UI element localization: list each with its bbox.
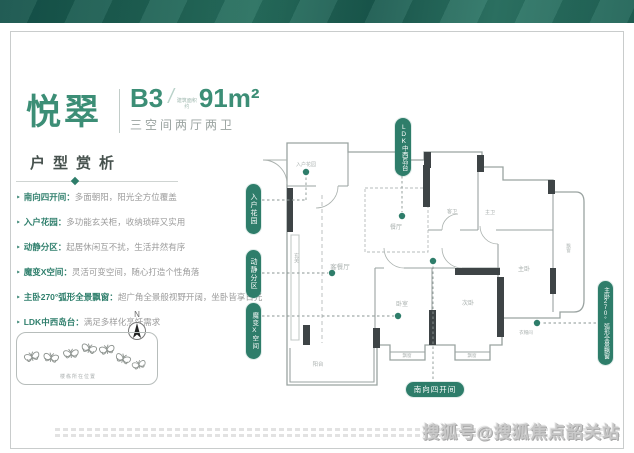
title-divider bbox=[119, 89, 120, 133]
bullet-icon: ‣ bbox=[16, 243, 21, 252]
compass-north-label: N bbox=[126, 311, 148, 319]
feature-label: 入户花园： bbox=[24, 217, 67, 227]
room-label: 入户花园 bbox=[296, 161, 316, 168]
bullet-icon: ‣ bbox=[16, 218, 21, 227]
location-box: 楼栋所在位置 bbox=[16, 332, 158, 385]
unit-code: B3 bbox=[130, 84, 163, 112]
bullet-icon: ‣ bbox=[16, 268, 21, 277]
room-label: 阳台 bbox=[312, 360, 324, 368]
unit-subtitle: 三空间两厅两卫 bbox=[130, 116, 235, 133]
feature-item: ‣动静分区：起居休闲互不扰，生活井然有序 bbox=[16, 241, 266, 253]
floorplan-drawing: 入户花园 餐厅 客卫 主卫 客餐厅 玄关 卧室 次卧 主卧 衣帽间 阳台 飘窗 … bbox=[252, 128, 608, 408]
room-label: 客餐厅 bbox=[330, 262, 350, 271]
project-name: 悦翠 bbox=[26, 84, 102, 135]
room-label: 卧室 bbox=[396, 300, 408, 308]
area-prefix: 建筑面积 约 bbox=[177, 84, 197, 110]
bullet-icon: ‣ bbox=[16, 318, 21, 327]
room-label: 客卫 bbox=[447, 208, 457, 215]
feature-label: LDK中西岛台： bbox=[24, 317, 84, 327]
unit-title-row: B3 / 建筑面积 约 91m² bbox=[130, 84, 260, 112]
callout-south-facing: 南向四开间 bbox=[406, 382, 464, 397]
room-label: 飘窗 bbox=[566, 243, 572, 254]
area-prefix-bottom: 约 bbox=[177, 104, 197, 110]
butterflies-illustration bbox=[17, 333, 155, 373]
feature-item: ‣入户花园：多功能玄关柜，收纳琐碎又实用 bbox=[16, 216, 266, 228]
feature-desc: 多功能玄关柜，收纳琐碎又实用 bbox=[66, 217, 185, 227]
section-title: 户型赏析 bbox=[30, 152, 122, 173]
room-label: 主卫 bbox=[485, 209, 495, 216]
feature-desc: 超广角全景般视野开阔，坐卧皆享日光 bbox=[118, 292, 263, 302]
door-arcs bbox=[316, 186, 498, 268]
bullet-icon: ‣ bbox=[16, 293, 21, 302]
feature-item: ‣魔变X空间：灵活可变空间，随心打造个性角落 bbox=[16, 266, 266, 278]
feature-item: ‣南向四开间：多面朝阳，阳光全方位覆盖 bbox=[16, 191, 266, 203]
callout-dots bbox=[303, 169, 540, 326]
room-label: 主卧 bbox=[518, 265, 530, 273]
feature-desc: 起居休闲互不扰，生活井然有序 bbox=[66, 242, 185, 252]
feature-desc: 满足多样化烹饪需求 bbox=[84, 317, 161, 327]
feature-label: 主卧270°弧形全景飘窗： bbox=[24, 292, 118, 302]
room-label: 玄关 bbox=[293, 252, 299, 264]
area-value: 91m² bbox=[199, 84, 260, 112]
feature-desc: 灵活可变空间，随心打造个性角落 bbox=[72, 267, 200, 277]
decorative-top-band bbox=[0, 0, 634, 23]
section-underline bbox=[16, 181, 178, 182]
feature-label: 南向四开间： bbox=[24, 192, 75, 202]
watermark: 搜狐号@搜狐焦点韶关站 bbox=[422, 418, 620, 443]
room-label: 次卧 bbox=[462, 299, 474, 307]
feature-desc: 多面朝阳，阳光全方位覆盖 bbox=[75, 192, 177, 202]
bullet-icon: ‣ bbox=[16, 193, 21, 202]
feature-label: 动静分区： bbox=[24, 242, 67, 252]
floorplan-flyer: 悦翠 B3 / 建筑面积 约 91m² 三空间两厅两卫 户型赏析 ‣南向四开间：… bbox=[0, 0, 634, 453]
open-dining-outline bbox=[365, 188, 428, 252]
callout-zone-separation: 动静分区 bbox=[246, 250, 261, 298]
feature-item: ‣主卧270°弧形全景飘窗：超广角全景般视野开阔，坐卧皆享日光 bbox=[16, 291, 266, 303]
room-label: 飘窗 bbox=[468, 352, 477, 359]
callout-master-baywindow: 主卧270°弧形全景飘窗 bbox=[598, 281, 613, 365]
callout-ldk-island: LDK中西岛台 bbox=[395, 118, 411, 176]
room-label: 飘窗 bbox=[403, 352, 412, 359]
room-label: 衣帽间 bbox=[519, 329, 533, 336]
callout-entry-garden: 入户花园 bbox=[246, 184, 261, 234]
callout-flex-space: 魔变X空间 bbox=[246, 303, 261, 359]
location-caption: 楼栋所在位置 bbox=[17, 373, 139, 380]
interior-walls bbox=[287, 152, 553, 382]
room-label: 餐厅 bbox=[390, 223, 402, 231]
slash-separator: / bbox=[168, 84, 174, 110]
feature-label: 魔变X空间： bbox=[24, 267, 72, 277]
